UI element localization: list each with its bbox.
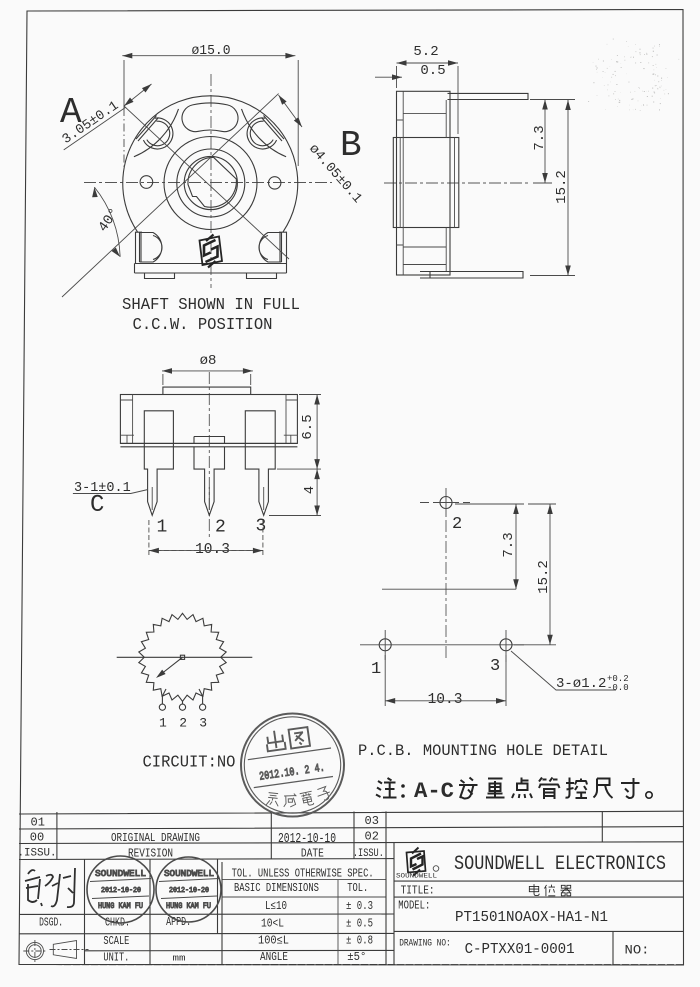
svg-text:TOL. UNLESS OTHERWISE SPEC.: TOL. UNLESS OTHERWISE SPEC.: [232, 868, 374, 881]
svg-text:10.3: 10.3: [428, 692, 463, 708]
svg-text:± 0.8: ± 0.8: [346, 935, 373, 948]
svg-text:5.2: 5.2: [413, 44, 438, 60]
svg-text:ø15.0: ø15.0: [192, 43, 231, 59]
svg-text:mm: mm: [173, 954, 186, 964]
svg-text:SOUNDWELL: SOUNDWELL: [396, 873, 437, 880]
svg-text:A-C: A-C: [414, 779, 454, 804]
svg-text:BASIC DIMENSIONS: BASIC DIMENSIONS: [234, 882, 319, 895]
svg-text:B: B: [340, 125, 362, 166]
svg-text:±5°: ±5°: [347, 951, 366, 964]
svg-text:02: 02: [365, 830, 379, 844]
svg-text:SOUNDWELL ELECTRONICS: SOUNDWELL ELECTRONICS: [454, 853, 666, 876]
svg-text:7.3: 7.3: [501, 532, 517, 557]
svg-text:HUNG KAM FU: HUNG KAM FU: [166, 902, 211, 911]
svg-text:1: 1: [157, 518, 168, 538]
svg-text:DATE: DATE: [301, 848, 324, 861]
svg-text:L≤10: L≤10: [265, 900, 287, 913]
svg-text:PT1501NOAOX-HA1-N1: PT1501NOAOX-HA1-N1: [455, 910, 608, 926]
svg-text:1: 1: [159, 716, 167, 731]
svg-text:2: 2: [215, 518, 226, 538]
svg-text:2012-10-10: 2012-10-10: [278, 832, 336, 847]
svg-text:SOUNDWELL: SOUNDWELL: [95, 868, 146, 879]
svg-text:ø8: ø8: [200, 353, 217, 369]
svg-text:C: C: [90, 492, 104, 519]
svg-text:DSGD.: DSGD.: [39, 917, 63, 930]
svg-text:SOUNDWELL: SOUNDWELL: [164, 868, 214, 879]
svg-text:ORIGINAL DRAWING: ORIGINAL DRAWING: [111, 832, 200, 845]
svg-text:± 0.3: ± 0.3: [346, 900, 373, 913]
svg-text:100≤L: 100≤L: [258, 935, 289, 948]
svg-text:3-ø1.2: 3-ø1.2: [556, 676, 606, 692]
svg-text:10<L: 10<L: [261, 918, 284, 931]
svg-text:3: 3: [490, 657, 500, 676]
svg-text:2: 2: [452, 515, 462, 534]
svg-text:3: 3: [256, 517, 267, 537]
svg-text:HUNG KAM FU: HUNG KAM FU: [98, 902, 143, 911]
svg-text:ANGLE: ANGLE: [260, 951, 288, 964]
svg-text:SCALE: SCALE: [103, 935, 129, 948]
svg-text:-0.0: -0.0: [607, 683, 629, 693]
svg-text:2012-10-20: 2012-10-20: [169, 887, 209, 895]
svg-text:NO:: NO:: [625, 943, 650, 958]
svg-text:4: 4: [302, 486, 318, 494]
svg-text:C-PTXX01-0001: C-PTXX01-0001: [465, 941, 575, 958]
svg-text:00: 00: [30, 831, 44, 845]
svg-text:CIRCUIT:NO: CIRCUIT:NO: [143, 753, 236, 772]
svg-text:SHAFT SHOWN IN FULL: SHAFT SHOWN IN FULL: [122, 295, 300, 314]
svg-text:2012-10-20: 2012-10-20: [101, 887, 141, 895]
svg-text:C.C.W. POSITION: C.C.W. POSITION: [133, 315, 273, 334]
svg-text:± 0.5: ± 0.5: [346, 918, 373, 931]
svg-text:03: 03: [365, 814, 379, 828]
svg-text:TITLE:: TITLE:: [401, 885, 435, 898]
svg-text:.ISSU.: .ISSU.: [18, 848, 57, 860]
svg-text:.ISSU.: .ISSU.: [353, 848, 384, 860]
svg-text:0.5: 0.5: [420, 63, 445, 79]
svg-text:TOL.: TOL.: [347, 882, 368, 895]
svg-text:1: 1: [371, 660, 381, 679]
svg-text:6.5: 6.5: [300, 414, 316, 439]
svg-text:MODEL:: MODEL:: [398, 900, 430, 913]
svg-text:DRAWING NO:: DRAWING NO:: [399, 938, 451, 950]
svg-text:UNIT.: UNIT.: [103, 952, 129, 965]
svg-text:P.C.B. MOUNTING HOLE DETAIL: P.C.B. MOUNTING HOLE DETAIL: [358, 742, 608, 760]
svg-text:3: 3: [199, 716, 207, 731]
svg-text:10.3: 10.3: [195, 542, 230, 558]
svg-text:01: 01: [31, 816, 45, 830]
svg-text:7.3: 7.3: [532, 125, 548, 150]
svg-text:2: 2: [179, 716, 187, 731]
